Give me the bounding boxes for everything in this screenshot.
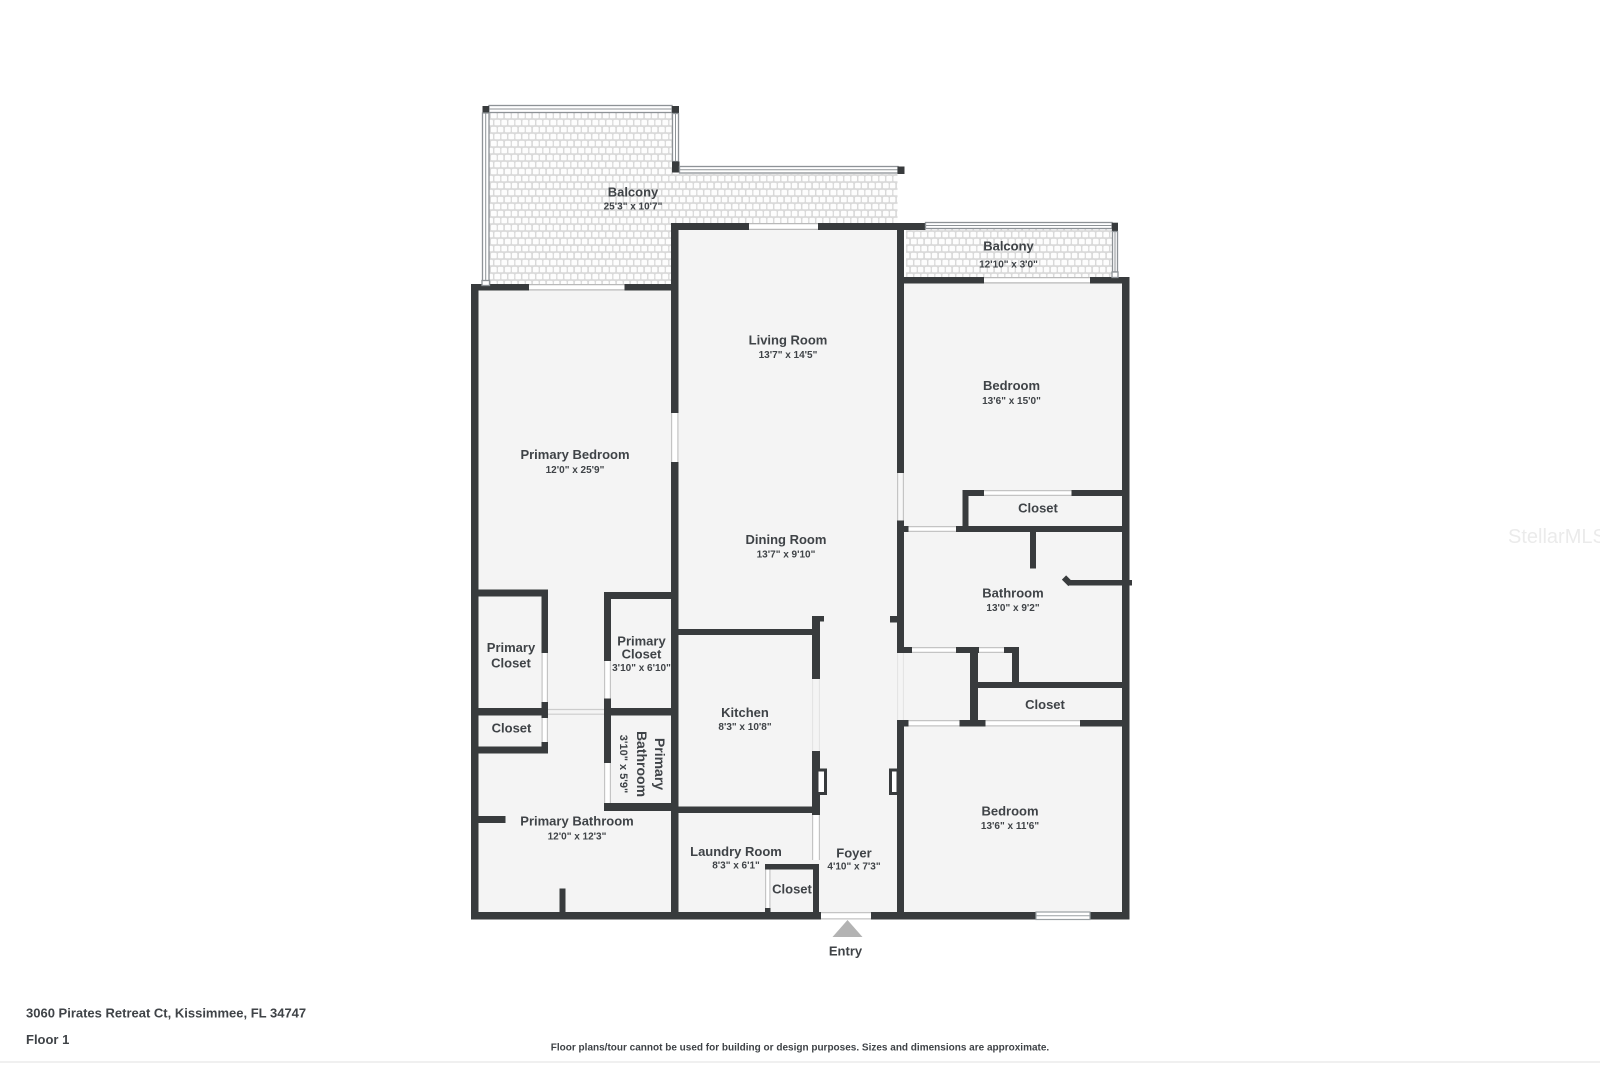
svg-text:8'3" x 6'1": 8'3" x 6'1" — [712, 861, 760, 872]
svg-text:Primary Bedroom: Primary Bedroom — [520, 447, 629, 462]
svg-text:4'10" x 7'3": 4'10" x 7'3" — [827, 862, 880, 873]
svg-text:Closet: Closet — [491, 656, 531, 671]
svg-text:12'0" x 12'3": 12'0" x 12'3" — [548, 832, 607, 843]
svg-text:Kitchen: Kitchen — [721, 705, 769, 720]
svg-text:3'10" x 5'9": 3'10" x 5'9" — [617, 735, 629, 793]
svg-text:Dining Room: Dining Room — [746, 532, 827, 547]
svg-text:Foyer: Foyer — [836, 846, 871, 861]
svg-text:13'6" x 11'6": 13'6" x 11'6" — [981, 821, 1039, 832]
svg-text:Floor 1: Floor 1 — [26, 1032, 69, 1047]
svg-text:Bathroom: Bathroom — [982, 586, 1043, 601]
svg-text:25'3" x 10'7": 25'3" x 10'7" — [604, 202, 663, 213]
svg-text:Closet: Closet — [1025, 697, 1065, 712]
svg-text:Bedroom: Bedroom — [981, 804, 1038, 819]
svg-text:Closet: Closet — [622, 647, 662, 662]
svg-text:12'10" x 3'0": 12'10" x 3'0" — [979, 260, 1038, 271]
svg-text:StellarMLS: StellarMLS — [1508, 526, 1600, 548]
svg-text:Closet: Closet — [492, 721, 532, 736]
svg-text:12'0" x 25'9": 12'0" x 25'9" — [546, 465, 605, 476]
svg-text:Floor plans/tour cannot be use: Floor plans/tour cannot be used for buil… — [551, 1043, 1050, 1054]
svg-text:Balcony: Balcony — [608, 185, 659, 200]
svg-text:Primary Bathroom: Primary Bathroom — [520, 814, 633, 829]
svg-text:3'10" x 6'10": 3'10" x 6'10" — [612, 663, 671, 674]
svg-text:Laundry Room: Laundry Room — [690, 844, 782, 859]
svg-text:Bathroom: Bathroom — [634, 731, 650, 797]
svg-text:Primary: Primary — [487, 640, 536, 655]
svg-text:Entry: Entry — [829, 944, 863, 959]
svg-text:Primary: Primary — [652, 738, 668, 790]
svg-text:3060 Pirates Retreat Ct, Kissi: 3060 Pirates Retreat Ct, Kissimmee, FL 3… — [26, 1006, 306, 1021]
svg-text:13'7" x 14'5": 13'7" x 14'5" — [759, 350, 818, 361]
svg-text:13'6" x 15'0": 13'6" x 15'0" — [982, 396, 1041, 407]
svg-text:Balcony: Balcony — [983, 239, 1034, 254]
svg-text:8'3" x 10'8": 8'3" x 10'8" — [718, 722, 771, 733]
svg-text:13'0" x 9'2": 13'0" x 9'2" — [986, 603, 1039, 614]
svg-text:Closet: Closet — [1018, 501, 1058, 516]
svg-text:13'7" x 9'10": 13'7" x 9'10" — [757, 550, 816, 561]
svg-text:Bedroom: Bedroom — [983, 378, 1040, 393]
svg-text:Living Room: Living Room — [749, 333, 828, 348]
svg-text:Closet: Closet — [772, 882, 812, 897]
